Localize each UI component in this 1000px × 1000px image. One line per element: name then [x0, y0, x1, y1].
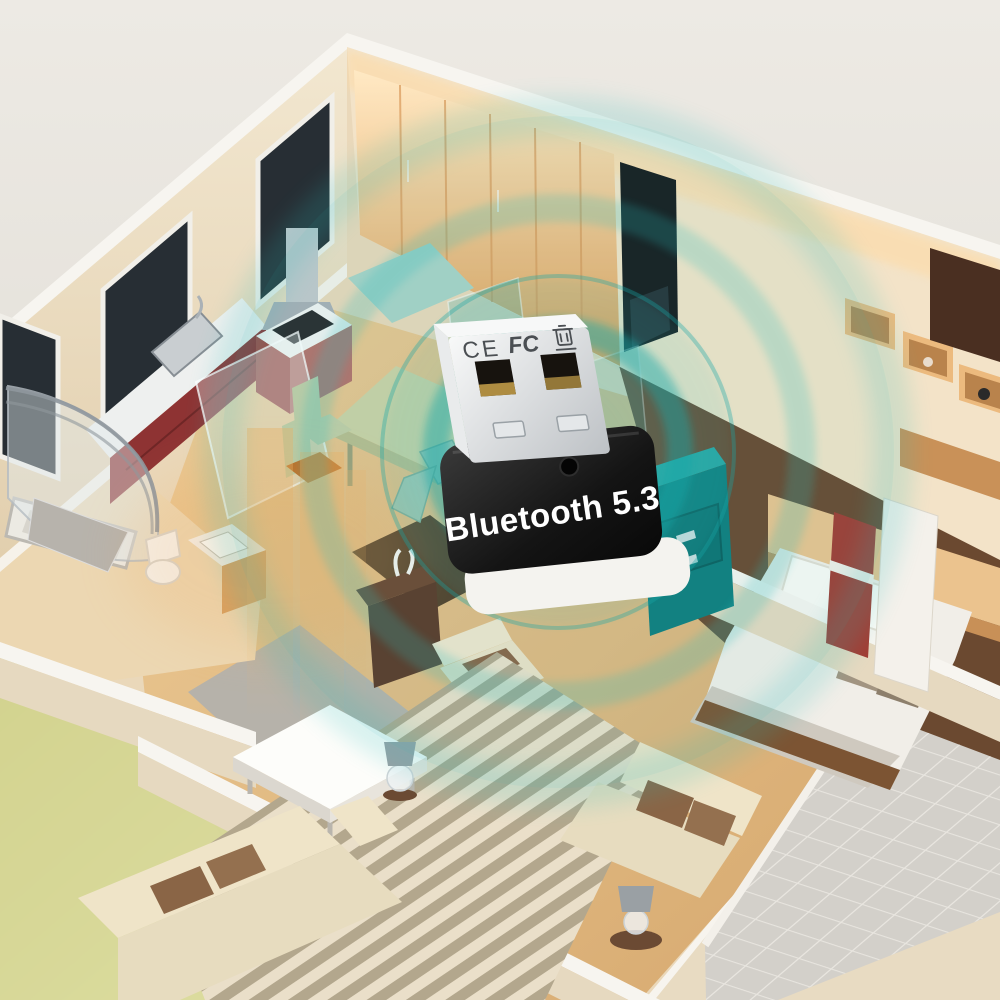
- isometric-apartment-scene: Bluetooth 5.3 CE FC: [0, 0, 1000, 1000]
- ce-mark: CE: [460, 335, 503, 363]
- usb-contact: [493, 421, 526, 438]
- fcc-mark: FC: [506, 330, 543, 358]
- led-indicator: [559, 457, 579, 477]
- usb-contact: [556, 415, 589, 432]
- shelf-decor-cup: [923, 357, 933, 367]
- shelf-decor-mug: [978, 388, 990, 400]
- product-hero-image: Bluetooth 5.3 CE FC: [0, 0, 1000, 1000]
- usb-connector: CE FC: [433, 313, 610, 464]
